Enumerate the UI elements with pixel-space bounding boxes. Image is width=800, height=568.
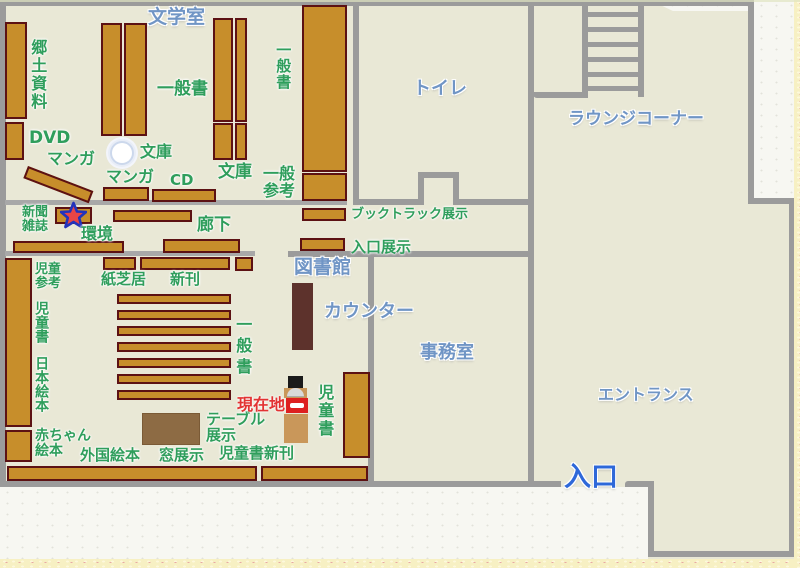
bookshelf-general-b <box>124 23 147 136</box>
label-children-books-left: 児童書 <box>33 301 48 343</box>
wall-upper-right-v <box>748 0 754 204</box>
room-label-counter: カウンター <box>324 302 414 321</box>
bookshelf-corridor-long-right <box>163 239 240 253</box>
label-general-top: 一般書 <box>157 80 208 98</box>
stairs-step <box>588 42 638 47</box>
bookshelf-booktruck-display <box>302 208 346 221</box>
room-label-lounge: ラウンジコーナー <box>568 110 704 128</box>
wall-closet-bottom <box>533 92 588 98</box>
bookshelf-manga-center <box>103 187 149 201</box>
bookshelf-entrance-display <box>300 238 345 251</box>
room-label-literature: 文学室 <box>148 7 205 28</box>
stairs-step <box>588 57 638 62</box>
page-edge-bottom <box>0 559 800 568</box>
bookshelf-children-row <box>117 342 231 352</box>
label-kyodo-shiryo: 郷土資料 <box>29 39 46 111</box>
room-label-entrance: 入口 <box>564 463 618 492</box>
label-general-reference: 一般 参考 <box>263 165 295 200</box>
label-manga-center: マンガ <box>106 168 154 185</box>
stairs-step <box>588 27 638 32</box>
bookshelf-dvd <box>5 122 24 160</box>
stairs-right-rail <box>638 6 644 97</box>
wall-upper-right-h <box>748 198 795 204</box>
bookshelf-children-row <box>117 374 231 384</box>
stairs-left-rail <box>582 6 588 96</box>
label-bunko-right: 文庫 <box>218 163 252 181</box>
bookshelf-general-d <box>235 18 247 122</box>
wall-center-vertical <box>528 0 534 487</box>
counter-desk <box>292 283 313 350</box>
bookshelf-children-right <box>343 372 370 458</box>
wall-bottom-left <box>0 481 561 487</box>
bookshelf-cd <box>152 189 216 202</box>
bookshelf-children-row <box>117 326 231 336</box>
bookshelf-children-left <box>5 258 32 427</box>
library-floor-map: 文学室 トイレ ラウンジコーナー 図書館 カウンター 事務室 エントランス 入口… <box>0 0 800 568</box>
wall-toilet-bottom-right <box>453 199 534 205</box>
bookshelf-general-a <box>101 23 122 136</box>
stairs-step <box>588 86 638 91</box>
bookshelf-kyodo-shiryo <box>5 22 27 119</box>
label-dvd: DVD <box>29 129 70 147</box>
bookshelf-small-right <box>235 257 253 271</box>
bookshelf-general-reference <box>302 173 347 201</box>
bookshelf-children-row <box>117 390 231 400</box>
bookshelf-window-display <box>7 466 257 481</box>
bookshelf-bunko-b <box>235 123 247 160</box>
room-label-library: 図書館 <box>294 257 351 278</box>
bookshelf-baby-books <box>5 430 32 462</box>
label-table-display: テーブル 展示 <box>206 411 265 443</box>
wall-bottom-right <box>648 551 795 557</box>
room-label-toilet: トイレ <box>413 79 467 98</box>
bookshelf-general-wide <box>302 5 347 172</box>
label-children-reference: 児童 参考 <box>35 263 61 291</box>
current-location-bar <box>290 403 304 408</box>
bookshelf-kamishibai <box>103 257 136 270</box>
wall-entrance-side <box>648 481 654 557</box>
label-newspaper-magazines: 新聞 雑誌 <box>22 206 48 234</box>
label-environment: 環境 <box>81 225 113 242</box>
bookshelf-children-row <box>117 294 231 304</box>
label-bunko-pillar: 文庫 <box>140 143 172 160</box>
bookshelf-children-new <box>261 466 368 481</box>
person-head <box>288 376 303 388</box>
page-edge-top <box>0 0 800 2</box>
label-children-new-books: 児童書新刊 <box>219 445 294 461</box>
bunko-pillar <box>112 143 132 163</box>
display-table <box>142 413 200 445</box>
wall-toilet-bottom-left <box>353 199 421 205</box>
label-corridor: 廊下 <box>197 216 231 234</box>
wall-toilet-left <box>353 6 359 205</box>
label-general-children: 一般書 <box>234 316 251 379</box>
exterior-bottom-left <box>0 487 648 568</box>
label-foreign-picture-books: 外国絵本 <box>80 447 140 463</box>
label-cd: CD <box>170 172 193 188</box>
bookshelf-corridor-a <box>113 210 192 222</box>
stairs-step <box>588 12 638 17</box>
person-stand <box>284 414 308 443</box>
label-general-right: 一般書 <box>275 42 291 90</box>
label-children-books-right: 児童書 <box>316 384 333 438</box>
bookshelf-general-c <box>213 18 233 122</box>
room-label-office: 事務室 <box>420 343 474 362</box>
stairs-step <box>588 72 638 77</box>
label-entrance-display: 入口展示 <box>351 239 411 255</box>
label-booktruck-display: ブックトラック展示 <box>351 208 468 222</box>
bookshelf-manga-diagonal <box>23 166 93 203</box>
label-kamishibai: 紙芝居 <box>101 271 146 287</box>
bookshelf-bunko-a <box>213 123 233 160</box>
room-label-entrance-hall: エントランス <box>598 386 694 403</box>
bookshelf-children-row <box>117 310 231 320</box>
bookshelf-children-row <box>117 358 231 368</box>
page-edge-right <box>794 0 800 568</box>
label-window-display: 窓展示 <box>159 447 204 463</box>
label-current-location: 現在地 <box>237 396 285 413</box>
label-japanese-picture-books: 日本絵本 <box>33 356 48 412</box>
label-manga-wall: マンガ <box>47 150 95 167</box>
label-new-books: 新刊 <box>170 271 200 287</box>
bookshelf-shinkan <box>140 257 230 270</box>
